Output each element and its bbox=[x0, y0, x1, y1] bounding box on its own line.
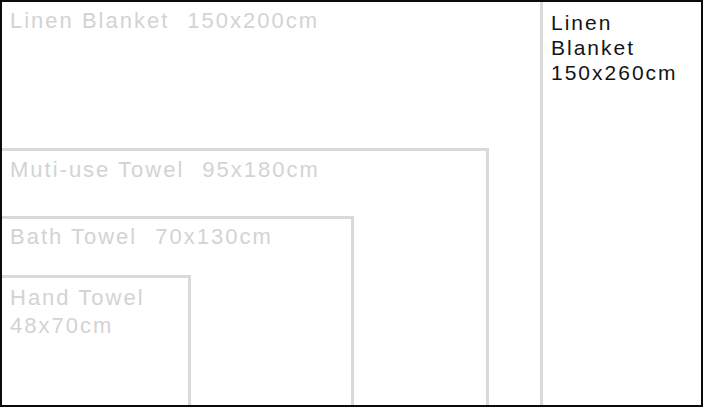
item-size: 48x70cm bbox=[10, 312, 145, 340]
item-size: 150x260cm bbox=[551, 60, 678, 85]
label-bath-towel: Bath Towel70x130cm bbox=[10, 224, 273, 250]
item-name: Hand Towel bbox=[10, 284, 145, 312]
item-size: 70x130cm bbox=[155, 224, 273, 249]
label-linen-blanket-150x200: Linen Blanket150x200cm bbox=[10, 8, 319, 34]
label-muti-use-towel: Muti-use Towel95x180cm bbox=[10, 157, 320, 183]
item-name: Linen Blanket bbox=[10, 8, 169, 33]
item-name-line: Linen bbox=[551, 10, 678, 35]
size-rect-linen-blanket-150x200 bbox=[2, 2, 543, 405]
item-name: Bath Towel bbox=[10, 224, 137, 249]
item-name: Muti-use Towel bbox=[10, 157, 184, 182]
size-comparison-stage: Linen Blanket150x200cm Muti-use Towel95x… bbox=[0, 0, 703, 407]
label-linen-blanket-150x260: Linen Blanket 150x260cm bbox=[551, 10, 678, 85]
item-size: 150x200cm bbox=[187, 8, 319, 33]
item-size: 95x180cm bbox=[202, 157, 320, 182]
item-name-line: Blanket bbox=[551, 35, 678, 60]
label-hand-towel: Hand Towel 48x70cm bbox=[10, 284, 145, 340]
